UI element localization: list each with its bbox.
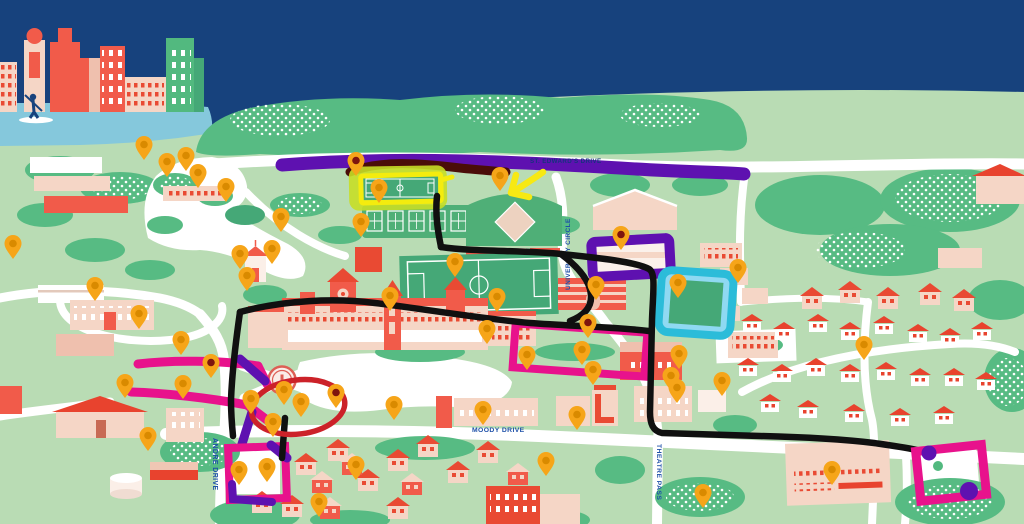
campus-map: ST. EDWARD'S DRIVE UNIVERSITY CIRCLE MOO…: [0, 0, 1024, 524]
label-theatre-pass: THEATRE PASS: [655, 444, 662, 500]
label-st-edwards-drive: ST. EDWARD'S DRIVE: [530, 158, 602, 165]
baseball-field: [466, 194, 562, 255]
label-andre-drive: ANDRE DRIVE: [211, 438, 218, 491]
label-moody-drive: MOODY DRIVE: [472, 427, 525, 434]
dome-tower-icon: [27, 28, 43, 44]
annotation-cyan-highlight: [658, 270, 734, 337]
campus-map-illustration: ST. EDWARD'S DRIVE UNIVERSITY CIRCLE MOO…: [0, 0, 1024, 524]
red-square-building: [355, 247, 382, 272]
